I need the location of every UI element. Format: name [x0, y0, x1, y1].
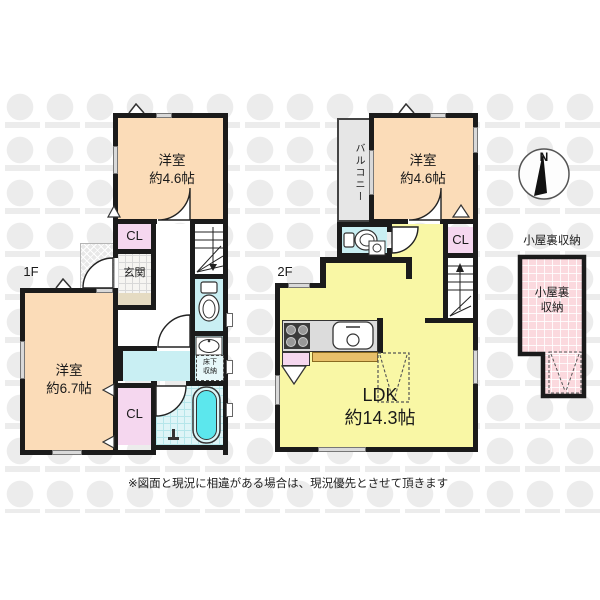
wall-segment — [118, 346, 123, 381]
bathtub-icon — [192, 386, 222, 444]
closet-door-icon — [107, 205, 122, 219]
counter-front — [312, 352, 378, 362]
closet-door-icon — [281, 365, 307, 386]
underfloor-storage-label-1: 床下 — [203, 359, 217, 366]
door-arc-icon — [156, 312, 193, 349]
wall-segment — [275, 447, 478, 452]
disclaimer-text: ※図面と現況に相違がある場合は、現況優先とさせて頂きます — [128, 477, 478, 492]
window — [288, 283, 310, 288]
wall-segment — [425, 318, 478, 323]
sink-icon — [332, 321, 374, 350]
room-name: 小屋裏 — [535, 287, 570, 299]
wall-segment — [113, 383, 156, 388]
window — [430, 113, 446, 118]
door-arc-icon — [406, 185, 443, 222]
window — [156, 113, 172, 118]
wall-segment — [118, 346, 157, 351]
attic-caption: 小屋裏収納 — [514, 234, 590, 249]
window — [52, 450, 82, 455]
floor-label-1f: 1F — [14, 264, 48, 281]
stairs-up-icon — [448, 258, 473, 318]
ldk-area — [325, 263, 443, 323]
compass-north-label: N — [540, 150, 549, 164]
door-arc-icon — [81, 256, 115, 290]
room-size: 約4.6帖 — [149, 171, 195, 186]
room-size: 約4.6帖 — [400, 171, 446, 186]
underfloor-storage-label-2: 収納 — [203, 368, 217, 375]
ladder-marker-icon — [548, 351, 582, 394]
door-arc-icon — [154, 384, 190, 420]
washbasin-icon — [195, 336, 223, 356]
window-small — [226, 403, 233, 417]
balcony-label: バルコニー — [345, 130, 365, 215]
window-small — [226, 313, 233, 327]
room-size: 約14.3帖 — [344, 408, 415, 428]
closet-label-1f-upper: CL — [118, 228, 151, 245]
stairs-down-icon — [195, 224, 223, 274]
window — [473, 127, 478, 153]
closet-door-icon — [102, 435, 116, 450]
closet-label-2f: CL — [448, 232, 473, 249]
underfloor-storage-box: 床下 収納 — [196, 355, 224, 381]
compass-icon: N — [516, 143, 572, 201]
wall-segment — [20, 450, 156, 455]
washbasin-icon — [368, 240, 386, 256]
roof-vent-icon — [128, 103, 145, 114]
closet-label-1f-lower: CL — [118, 406, 151, 423]
shower-icon — [166, 428, 180, 442]
ldk-label: LDK 約14.3帖 — [300, 384, 460, 429]
room-name: 洋室 — [159, 153, 186, 168]
window — [113, 146, 118, 174]
kitchen-cabinet — [282, 352, 310, 366]
stove-icon — [284, 323, 310, 349]
room-name: LDK — [362, 385, 397, 405]
room-name: 洋室 — [56, 363, 83, 378]
room-label-2f-bedroom-46: 洋室 約4.6帖 — [371, 152, 475, 187]
roof-vent-icon — [55, 278, 72, 289]
room-name: 収納 — [541, 302, 564, 314]
genkan-step — [118, 293, 151, 305]
room-label-1f-bedroom-46: 洋室 約4.6帖 — [120, 152, 224, 187]
attic-room-label: 小屋裏 収納 — [520, 286, 584, 316]
floorplan-canvas: 床下 収納 洋室 約4.6帖 CL 玄関 洋室 約6.7帖 CL 1F — [0, 0, 600, 600]
closet-door-icon — [452, 204, 471, 219]
wall-segment — [369, 113, 478, 118]
room-name: 洋室 — [410, 153, 437, 168]
wall-segment — [320, 257, 412, 263]
roof-vent-icon — [398, 103, 415, 114]
window-small — [226, 360, 233, 374]
floor-label-2f: 2F — [268, 264, 302, 281]
door-arc-icon — [155, 185, 192, 222]
room-label-1f-bedroom-67: 洋室 約6.7帖 — [25, 362, 113, 397]
wall-segment — [113, 305, 156, 310]
wall-segment — [275, 283, 280, 452]
window — [275, 375, 280, 405]
window — [318, 447, 366, 452]
wall-segment — [151, 445, 228, 450]
room-size: 約6.7帖 — [46, 381, 92, 396]
door-arc-icon — [390, 225, 420, 255]
hallway-1f-lower — [118, 310, 156, 346]
wall-segment — [406, 257, 412, 279]
genkan-label: 玄関 — [118, 266, 151, 280]
toilet-icon — [195, 279, 223, 331]
window — [473, 350, 478, 384]
wall-segment — [151, 219, 156, 310]
wall-segment — [113, 249, 156, 254]
